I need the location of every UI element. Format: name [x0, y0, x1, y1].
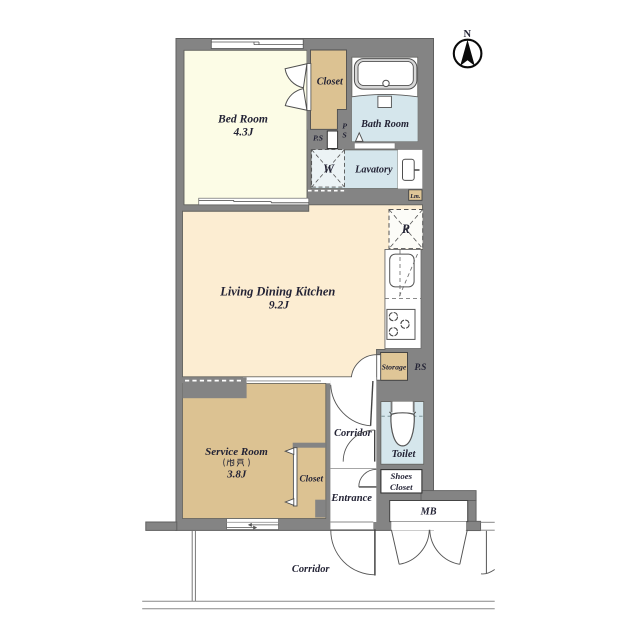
svg-text:Toilet: Toilet — [392, 449, 417, 460]
svg-text:Shoes: Shoes — [391, 471, 413, 481]
svg-text:P.S: P.S — [313, 134, 324, 143]
svg-text:Entrance: Entrance — [330, 493, 372, 504]
svg-text:MB: MB — [420, 507, 437, 518]
svg-text:Lm.: Lm. — [409, 193, 421, 200]
svg-text:Service Room: Service Room — [205, 446, 268, 458]
svg-text:Living Dining Kitchen: Living Dining Kitchen — [219, 285, 335, 299]
svg-text:Closet: Closet — [317, 77, 344, 88]
svg-text:Bath Room: Bath Room — [360, 119, 409, 130]
svg-text:Corridor: Corridor — [292, 564, 330, 575]
svg-text:P.S: P.S — [414, 362, 426, 372]
svg-text:Lavatory: Lavatory — [354, 164, 393, 175]
svg-text:N: N — [464, 29, 472, 40]
svg-text:S: S — [342, 130, 347, 139]
svg-text:3.8J: 3.8J — [226, 469, 247, 481]
svg-text:Corridor: Corridor — [334, 428, 372, 439]
svg-text:Storage: Storage — [382, 362, 407, 371]
svg-text:P: P — [342, 121, 347, 130]
svg-text:9.2J: 9.2J — [269, 300, 290, 312]
svg-text:4.3J: 4.3J — [233, 126, 254, 138]
svg-text:R: R — [401, 222, 410, 236]
svg-text:W: W — [323, 162, 335, 176]
svg-text:Bed Room: Bed Room — [217, 112, 268, 125]
svg-text:Closet: Closet — [300, 474, 324, 484]
svg-text:Closet: Closet — [390, 482, 413, 492]
